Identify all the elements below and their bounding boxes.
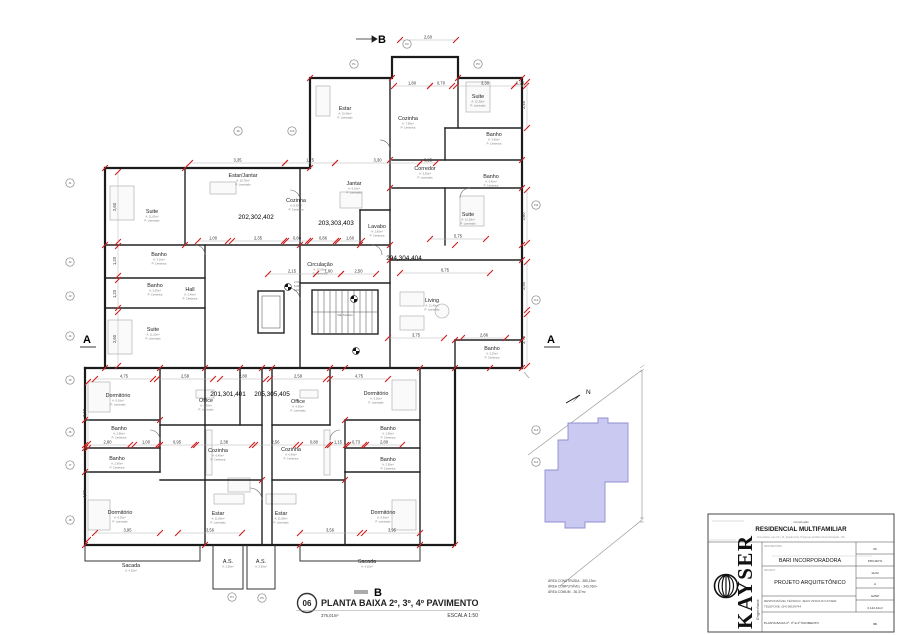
dim-value: 3,30: [374, 157, 383, 162]
room-floor: P: Cerâmica: [289, 207, 304, 211]
phone-text: TELEFONE: (54) 98199744: [764, 605, 801, 609]
dim-value: 3,75: [412, 332, 421, 337]
room-label: A.S.: [223, 559, 233, 565]
level-value: 2,72: [294, 281, 299, 284]
dim-value: 3,60: [521, 212, 526, 221]
logo-subtext: Engenharia: [755, 599, 760, 620]
room-area: A: 12,06m²: [313, 268, 326, 272]
dim-value: 2,80: [104, 439, 113, 444]
field-value: 3.142,44m²: [867, 606, 883, 610]
sheet-number: 06: [873, 622, 877, 626]
area-computable: ÁREA COMPUTÁVEL - 343,76m²: [548, 585, 598, 589]
room-floor: P: Laminado: [145, 336, 161, 340]
room-floor: P: Cerâmica: [152, 261, 167, 265]
construction-label: Construção: [793, 520, 809, 524]
room-label: Banho: [483, 174, 499, 180]
dim-value: 1,20: [112, 256, 117, 265]
room-area: A: 9,30m²: [377, 516, 389, 520]
room-area: A: 9,10m²: [348, 187, 360, 191]
room-floor: P: Cerâmica: [370, 233, 385, 237]
grid-bubble-tag: J5: [69, 378, 72, 382]
grid-bubble-tag: P4: [230, 595, 234, 599]
room-floor: P: Laminado: [198, 407, 214, 411]
room-label: Estar: [339, 106, 352, 112]
room-floor: P: Laminado: [273, 520, 289, 524]
room-area: A: 18,75m²: [236, 179, 249, 183]
dim-value: 2,80: [380, 439, 389, 444]
dim-value: 2,50: [521, 281, 526, 290]
room-label: Vão Técnico: [337, 313, 353, 317]
dim-value: 1,00: [209, 235, 218, 240]
project-name: RESIDENCIAL MULTIFAMILIAR: [755, 526, 847, 533]
grid-bubble-tag: J3: [69, 294, 72, 298]
unit-number: 205,305,405: [254, 391, 290, 398]
sheet-footer: 06 PLANTA BAIXA 2º, 3º, 4º PAVIMENTO 376…: [296, 594, 480, 620]
room-label: Cozinha: [286, 198, 306, 204]
field-value: PROJETO: [868, 559, 883, 563]
room-floor: P: Cerâmica: [211, 457, 226, 461]
floor-plan: 2,72 5,44 8,16 2,601,800,703,300,203,351…: [66, 34, 560, 602]
room-label: A.S.: [256, 559, 266, 565]
room-area: A: 9,30m²: [114, 516, 126, 520]
grid-bubbles: J1J2J3J4J5J6J7J8P1P2P3J9J10J11J12J13J14P…: [66, 40, 540, 602]
drawing-canvas: 2,72 5,44 8,16 2,601,800,703,300,203,351…: [0, 0, 900, 635]
room-area: A: 9,16m²: [112, 399, 124, 403]
room-floor: P: Laminado: [144, 218, 160, 222]
grid-bubble-tag: J14: [534, 460, 539, 464]
grid-bubble-tag: J8: [69, 518, 72, 522]
dim-value: 0,86: [319, 235, 328, 240]
grid-bubble-tag: J1: [69, 181, 72, 185]
room-label: Estar/Jantar: [228, 173, 257, 179]
room-area: A: 13,10m²: [461, 218, 474, 222]
room-floor: P: Cerâmica: [487, 141, 502, 145]
room-area: A: 3,05m²: [149, 289, 161, 293]
grid-bubble-tag: J2: [69, 260, 72, 264]
grid-bubble-tag: J4: [69, 334, 72, 338]
room-label: Cozinha: [398, 116, 418, 122]
drawing-scale: ESCALA 1:50: [447, 613, 478, 619]
room-label: Banho: [151, 252, 167, 258]
grid-bubble-tag: J11: [534, 203, 539, 207]
grid-bubble-tag: J6: [69, 430, 72, 434]
dim-value: 0,73: [352, 439, 361, 444]
dim-value: 1,75: [306, 157, 315, 162]
room-area: A: 2,56m²: [255, 565, 267, 569]
grid-bubble-tag: J13: [534, 428, 539, 432]
drawing-title: PLANTA BAIXA 2º, 3º, 4º PAVIMENTO: [321, 598, 479, 608]
building-footprint: [545, 418, 628, 528]
room-floor: P: Cerâmica: [381, 466, 396, 470]
dim-value: 4,86: [82, 489, 87, 498]
room-label: Sacada: [122, 563, 140, 569]
dim-value: 1,60: [346, 235, 355, 240]
dim-value: 0,20: [516, 80, 525, 85]
grid-bubble-tag: P1: [352, 62, 356, 66]
field-value: 06: [873, 547, 877, 551]
area-common: ÁREA COMUM - 36,37m²: [548, 590, 586, 594]
room-floor: P: Cerâmica: [484, 183, 499, 187]
room-area: A: 2,40m²: [184, 293, 196, 297]
room-floor: P: Laminado: [375, 519, 391, 523]
room-label: Office: [199, 398, 213, 404]
room-label: Office: [291, 399, 305, 405]
dim-value: 0,70: [437, 80, 446, 85]
level-value: 5,44: [294, 285, 299, 288]
room-area: A: 3,60m²: [488, 138, 500, 142]
grid-bubble-tag: P5: [260, 596, 264, 600]
sheet-title: PLANTA BAIXA 2º, 3º E 4º PAVIMENTO: [764, 621, 820, 625]
room-area: A: 4,10m²: [125, 569, 137, 573]
drawing-sheet: 2,72 5,44 8,16 2,601,800,703,300,203,351…: [0, 0, 900, 635]
room-area: A: 3,20m²: [486, 352, 498, 356]
room-floor: P: Laminado: [424, 307, 440, 311]
room-floor: P: Cerâmica: [183, 296, 198, 300]
room-floor: P: Laminado: [368, 400, 384, 404]
north-label: N: [586, 389, 591, 396]
unit-number: 204,304,404: [386, 255, 422, 262]
room-area: A: 2,90m²: [382, 463, 394, 467]
room-floor: P: Laminado: [460, 221, 476, 225]
area-built: ÁREA CONSTRUÍDA - 380,13m²: [548, 579, 597, 583]
room-floor: P: Cerâmica: [110, 465, 125, 469]
room-label: Hall: [185, 287, 194, 293]
site-plan: N ÁREA CONSTRUÍDA - 380,13m² ÁREA COMPUT…: [524, 365, 644, 594]
project-address: Rua Caxias, Lote 15 e 16, Quadra 12 E, P…: [757, 536, 845, 539]
room-area: A: 9,16m²: [370, 397, 382, 401]
field-value: A: [874, 582, 877, 586]
room-area: A: 6,40m²: [212, 454, 224, 458]
dim-value: 2,56: [272, 439, 281, 444]
dim-value: 3,35: [234, 157, 243, 162]
room-area: A: 11,20m²: [147, 333, 160, 337]
room-label: Corredor: [414, 166, 435, 172]
dim-value: 1,00: [142, 439, 151, 444]
dim-value: 2,86: [480, 332, 489, 337]
unit-number: 202,302,402: [238, 214, 274, 221]
room-area: A: 4,30m²: [200, 404, 212, 408]
dim-value: 0,25: [424, 157, 433, 162]
title-block: Construção RESIDENCIAL MULTIFAMILIAR Rua…: [708, 514, 894, 632]
dim-value: 4,75: [355, 373, 364, 378]
room-area: A: 2,96m²: [382, 432, 394, 436]
dim-tick: [452, 242, 457, 247]
title-block-header: Construção RESIDENCIAL MULTIFAMILIAR Rua…: [755, 520, 847, 539]
dim-value: 2,60: [112, 202, 117, 211]
room-label: Banho: [111, 426, 127, 432]
room-label: Dormitório: [108, 510, 133, 516]
section-markers: B B A A: [80, 34, 560, 599]
dim-value: 6,75: [441, 267, 450, 272]
project-label: PROJETO: [764, 569, 775, 572]
field-value: GZNP: [871, 594, 880, 598]
room-area: A: 4,10m²: [361, 565, 373, 569]
grid-bubble-tag: P3: [476, 62, 480, 66]
room-floor: P: Cerâmica: [381, 435, 396, 439]
field-value: 11/22: [871, 571, 879, 575]
dim-value: 2,60: [112, 334, 117, 343]
section-marker-a-right: A: [547, 334, 555, 346]
dim-value: 0,95: [173, 439, 182, 444]
room-area: A: 11,80m²: [212, 517, 225, 521]
room-label: Cozinha: [281, 447, 301, 453]
grid-bubble-tag: J10: [290, 129, 295, 133]
level-value: 8,16: [294, 289, 299, 292]
room-label: Banho: [486, 132, 502, 138]
room-label: Banho: [380, 426, 396, 432]
room-label: Suite: [147, 327, 159, 333]
drawing-number: 06: [303, 599, 312, 608]
dim-value: 2,58: [181, 373, 190, 378]
room-labels: SuiteA: 11,63m²P: LaminadoBanhoA: 3,10m²…: [106, 94, 502, 573]
room-area: A: 2,96m²: [113, 432, 125, 436]
room-floor: P: Cerâmica: [148, 292, 163, 296]
title-block-fields: 06 PROJETO 11/22 A GZNP 3.142,44m² 06: [867, 547, 883, 626]
dim-value: 3,10: [82, 408, 87, 417]
dim-value: 3,30: [481, 80, 490, 85]
room-floor: P: Cerâmica: [485, 355, 500, 359]
unit-number: 201,301,401: [210, 391, 246, 398]
dim-value: 2,58: [294, 373, 303, 378]
room-floor: P: Cerâmica: [401, 125, 416, 129]
drawing-area: 376,01m²: [321, 613, 339, 618]
room-area: A: 12,30m²: [471, 100, 484, 104]
room-floor: P: Laminado: [417, 175, 433, 179]
room-area: A: 3,40m²: [485, 180, 497, 184]
dim-value: 5,75: [454, 233, 463, 238]
room-label: Banho: [147, 283, 163, 289]
room-area: A: 3,10m²: [153, 258, 165, 262]
room-area: A: 15,40m²: [338, 112, 351, 116]
room-floor: P: Laminado: [110, 402, 126, 406]
room-area: A: 1,60m²: [371, 230, 383, 234]
logo-text: KAYSER: [733, 534, 757, 629]
room-area: A: 6,40m²: [285, 453, 297, 457]
room-floor: P: Cerâmica: [284, 456, 299, 460]
dim-value: 2,60: [424, 34, 433, 39]
room-area: A: 2,56m²: [222, 565, 234, 569]
room-area: A: 3,20m²: [419, 172, 431, 176]
section-marker-b-top: B: [378, 34, 386, 46]
owner-name: BARI INCORPORADORA: [779, 558, 842, 564]
dim-value: 1,15: [334, 439, 343, 444]
grid-bubble-tag: P2: [405, 42, 409, 46]
dim-value: 3,56: [326, 527, 335, 532]
stair-core: [258, 290, 378, 334]
room-label: Suite: [472, 94, 484, 100]
room-floor: P: Cerâmica: [313, 271, 328, 275]
dim-value: 4,75: [120, 373, 129, 378]
dim-value: 3,56: [206, 527, 215, 532]
unit-number: 203,303,403: [318, 220, 354, 227]
responsible-text: RESPONSÁVEL TÉCNICO: JEAN VINICIUS KAYSE…: [764, 598, 837, 603]
room-floor: P: Laminado: [470, 103, 486, 107]
room-area: A: 11,80m²: [275, 517, 288, 521]
dim-value: 2,40: [521, 100, 526, 109]
room-label: Banho: [109, 456, 125, 462]
dimension-ticks: [82, 75, 524, 547]
room-area: A: 11,63m²: [146, 215, 159, 219]
room-label: Jantar: [347, 181, 362, 187]
site-area-notes: ÁREA CONSTRUÍDA - 380,13m² ÁREA COMPUTÁV…: [548, 579, 598, 594]
room-label: Circulação: [307, 262, 332, 268]
room-label: Living: [425, 298, 439, 304]
room-area: A: 7,95m²: [402, 122, 414, 126]
room-label: Sacada: [358, 559, 376, 565]
dim-value: 2,50: [355, 268, 364, 273]
room-floor: P: Laminado: [346, 190, 362, 194]
room-label: Suite: [146, 209, 158, 215]
dim-value: 0,80: [310, 439, 319, 444]
kayser-logo: KAYSER Engenharia: [715, 534, 761, 629]
dim-value: 2,38: [220, 439, 229, 444]
room-label: Dormitório: [371, 510, 396, 516]
room-area: A: 21,40m²: [425, 304, 438, 308]
room-label: Estar: [212, 511, 225, 517]
grid-bubble-tag: J9: [237, 129, 240, 133]
owner-label: PROPRIETÁRIO: [764, 545, 782, 548]
section-marker-a-left: A: [83, 334, 91, 346]
room-floor: P: Laminado: [235, 182, 251, 186]
north-arrow: N: [566, 389, 591, 403]
room-floor: P: Laminado: [112, 519, 128, 523]
room-floor: P: Cerâmica: [112, 435, 127, 439]
room-area: A: 2,90m²: [111, 462, 123, 466]
room-floor: P: Laminado: [290, 408, 306, 412]
room-label: Cozinha: [208, 448, 228, 454]
dim-value: 2,35: [254, 235, 263, 240]
dim-value: 2,80: [239, 373, 248, 378]
room-area: A: 8,30m²: [290, 204, 302, 208]
dim-value: 3,95: [388, 527, 397, 532]
room-floor: P: Laminado: [210, 520, 226, 524]
walls: [85, 57, 522, 589]
room-label: Lavabo: [368, 224, 386, 230]
dim-value: 1,20: [112, 289, 117, 298]
dim-value: 0,88: [293, 235, 302, 240]
grid-bubble-tag: J7: [69, 463, 72, 467]
dim-value: 3,95: [124, 527, 133, 532]
room-label: Banho: [380, 457, 396, 463]
room-label: Dormitório: [106, 393, 131, 399]
grid-bubble-tag: J12: [534, 298, 539, 302]
room-label: Estar: [275, 511, 288, 517]
dim-value: 1,80: [408, 80, 417, 85]
dim-value: 2,15: [288, 268, 297, 273]
room-label: Banho: [484, 346, 500, 352]
room-floor: P: Laminado: [337, 115, 353, 119]
room-label: Suite: [462, 212, 474, 218]
project-type: PROJETO ARQUITETÔNICO: [774, 579, 845, 586]
room-label: Dormitório: [364, 391, 389, 397]
room-area: A: 4,30m²: [292, 405, 304, 409]
